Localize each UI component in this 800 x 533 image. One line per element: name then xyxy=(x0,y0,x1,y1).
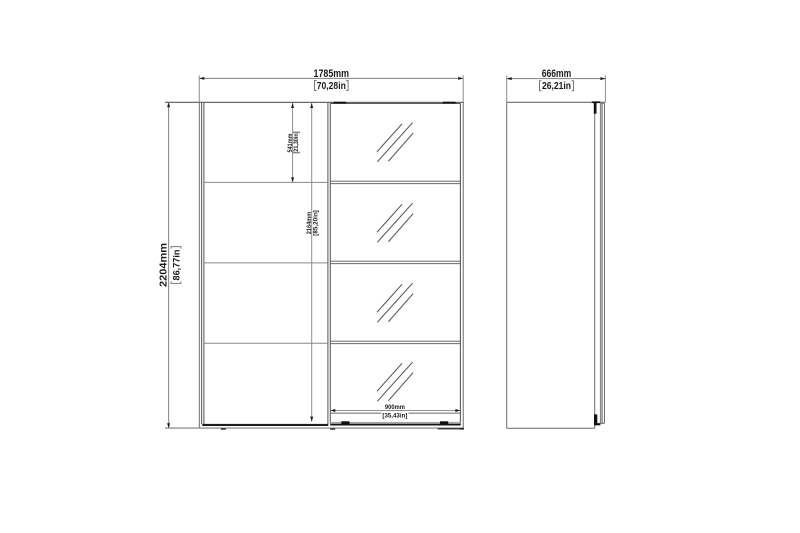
svg-text:[35,43in]: [35,43in] xyxy=(382,414,407,420)
svg-text:70,28in: 70,28in xyxy=(317,81,346,92)
svg-text:900mm: 900mm xyxy=(385,405,405,411)
svg-text:666mm: 666mm xyxy=(542,68,572,80)
svg-text:1785mm: 1785mm xyxy=(314,68,350,80)
svg-text:2164mm: 2164mm xyxy=(307,212,313,235)
svg-text:2204mm: 2204mm xyxy=(159,243,170,287)
svg-text:[85,20in]: [85,20in] xyxy=(313,210,319,236)
svg-text:86,77in: 86,77in xyxy=(171,249,182,280)
svg-text:[21,30in]: [21,30in] xyxy=(294,131,300,153)
svg-text:26,21in: 26,21in xyxy=(542,81,571,92)
